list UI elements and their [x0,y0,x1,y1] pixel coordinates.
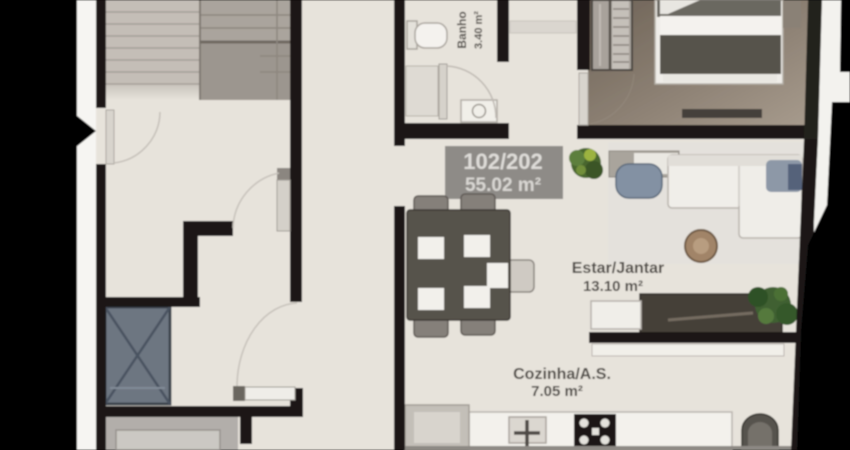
svg-text:Estar/Jantar: Estar/Jantar [572,260,665,277]
svg-text:55.02 m²: 55.02 m² [465,175,541,196]
svg-text:102/202: 102/202 [463,149,543,174]
svg-text:Cozinha/A.S.: Cozinha/A.S. [513,366,611,383]
svg-text:Banho: Banho [455,11,469,48]
svg-text:13.10 m²: 13.10 m² [583,278,643,295]
svg-text:3.40 m²: 3.40 m² [473,11,485,49]
svg-text:7.05 m²: 7.05 m² [531,383,583,400]
